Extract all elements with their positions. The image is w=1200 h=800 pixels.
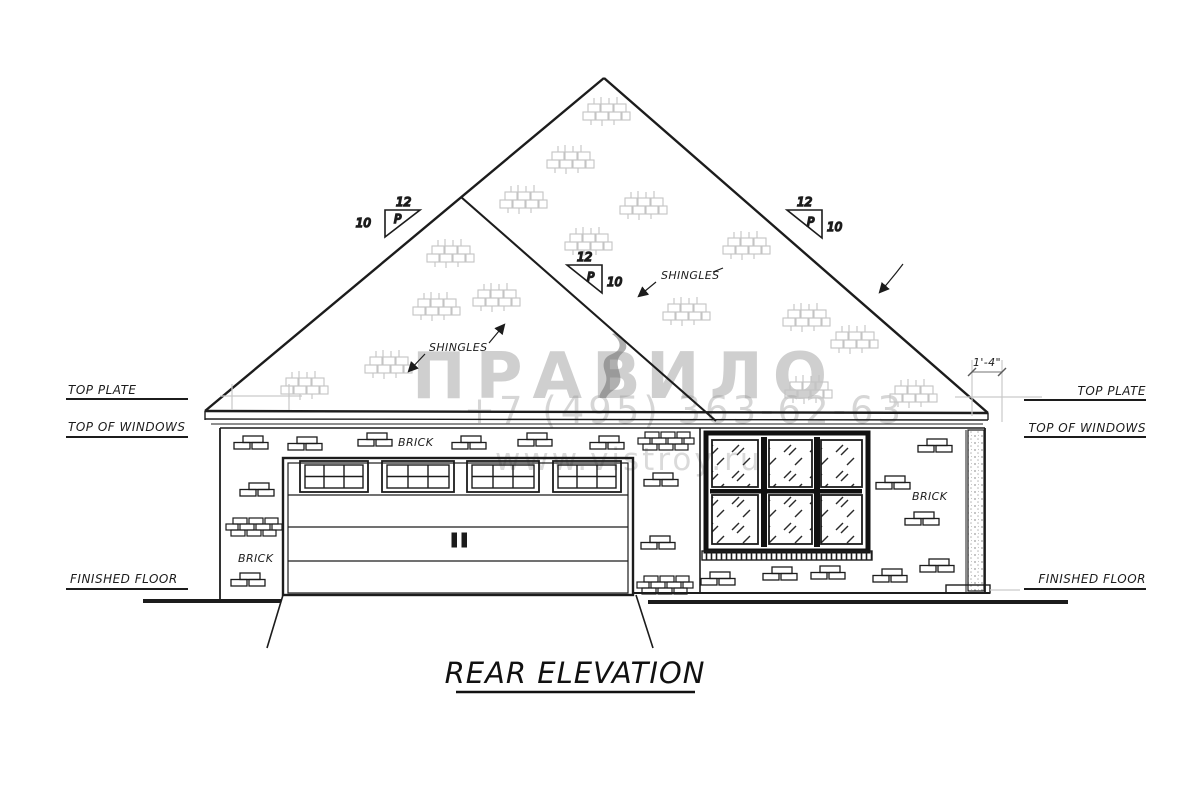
pitch-letter: P bbox=[807, 215, 815, 229]
pitch-rise-label: 10 bbox=[607, 275, 623, 289]
shingles-callout-right: SHINGLES bbox=[639, 264, 903, 296]
pitch-symbol-middle: 12 10 P bbox=[567, 250, 623, 293]
ground bbox=[143, 595, 1068, 648]
garage-window-panel bbox=[467, 461, 539, 492]
pitch-symbol-left: 12 10 P bbox=[356, 195, 420, 237]
pitch-run-label: 12 bbox=[396, 195, 411, 209]
pitch-symbol-right: 12 10 P bbox=[787, 195, 843, 238]
window-mullion bbox=[710, 489, 862, 494]
drawing-title: REAR ELEVATION bbox=[445, 656, 706, 690]
top-of-windows-label-right: TOP OF WINDOWS bbox=[1028, 421, 1146, 435]
shingles-label: SHINGLES bbox=[661, 269, 720, 282]
brick-label-left: BRICK bbox=[238, 552, 274, 565]
corner-trim bbox=[968, 430, 984, 591]
top-plate-label-right: TOP PLATE bbox=[1078, 384, 1147, 398]
finished-floor-label-left: FINISHED FLOOR bbox=[70, 572, 178, 586]
pitch-letter: P bbox=[394, 212, 402, 226]
title-block: REAR ELEVATION bbox=[445, 656, 706, 692]
pitch-run-label: 12 bbox=[577, 250, 592, 264]
finished-floor-label-right: FINISHED FLOOR bbox=[1038, 572, 1146, 586]
pitch-letter: P bbox=[587, 270, 595, 284]
top-plate-label-left: TOP PLATE bbox=[68, 383, 137, 397]
garage-window-panel bbox=[382, 461, 454, 492]
watermark-phone: +7 (495) 363-62-63 bbox=[464, 389, 905, 432]
pitch-run-label: 12 bbox=[797, 195, 812, 209]
door-handle bbox=[462, 533, 467, 547]
garage-door-windows bbox=[300, 461, 621, 492]
rear-elevation-sheet: ПРАВ ИЛО +7 (495) 363-62-63 www.vistroy.… bbox=[0, 0, 1200, 800]
eave-overhang-dimension: 1'-4" bbox=[973, 356, 1001, 369]
pitch-rise-label: 10 bbox=[827, 220, 843, 234]
eave-dimension: 1'-4" bbox=[968, 356, 1006, 376]
top-of-windows-label-left: TOP OF WINDOWS bbox=[68, 420, 186, 434]
window-sill bbox=[702, 551, 872, 560]
triple-window bbox=[702, 433, 872, 560]
brick-label-garage: BRICK bbox=[398, 436, 434, 449]
brick-label-right: BRICK bbox=[912, 490, 948, 503]
pitch-rise-label: 10 bbox=[356, 216, 372, 230]
elevation-drawing: ПРАВ ИЛО +7 (495) 363-62-63 www.vistroy.… bbox=[0, 0, 1200, 800]
garage-window-panel bbox=[300, 461, 368, 492]
garage-window-panel bbox=[553, 461, 621, 492]
shingles-label: SHINGLES bbox=[429, 341, 488, 354]
garage-door bbox=[283, 458, 633, 595]
door-handle bbox=[452, 533, 457, 547]
